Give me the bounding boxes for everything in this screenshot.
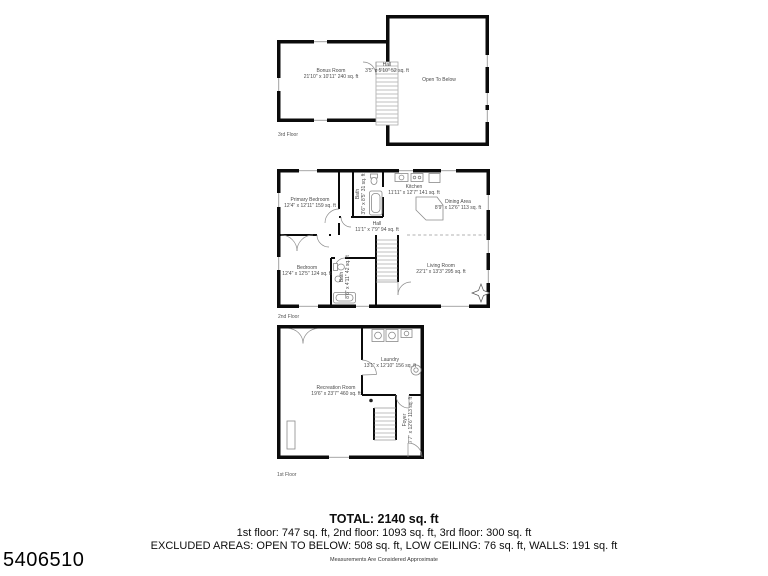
floor-plan-2nd: Primary Bedroom 12'4" x 12'11" 159 sq. f…	[277, 169, 490, 325]
floor-2-walls-drawing	[277, 169, 490, 325]
room-label-open-to-below: Open To Below	[422, 77, 456, 83]
floor-tag-2nd: 2nd Floor	[278, 314, 299, 320]
listing-id: 5406510	[3, 549, 84, 572]
room-label-bath-upper: Bath 3'6" x 8'5" 31 sq. ft	[355, 173, 368, 214]
room-label-primary-bedroom: Primary Bedroom 12'4" x 12'11" 159 sq. f…	[284, 197, 336, 210]
room-label-kitchen: Kitchen 11'11" x 12'7" 141 sq. ft	[388, 184, 439, 197]
room-label-hall-2nd: Hall 11'1" x 7'9" 94 sq. ft	[355, 221, 398, 234]
room-label-bedroom: Bedroom 12'4" x 12'5" 124 sq. ft	[282, 265, 331, 278]
floor-areas-text: 1st floor: 747 sq. ft, 2nd floor: 1093 s…	[0, 527, 768, 539]
disclaimer-text: Measurements Are Considered Approximate	[0, 557, 768, 563]
floor-plan-3rd: Bonus Room 21'10" x 10'11" 240 sq. ft Ha…	[277, 12, 490, 152]
room-label-hall-3rd: Hall 3'5" x 5'10" 52 sq. ft	[365, 62, 409, 75]
room-label-bath-lower: Bath 8'6" x 4'11" 42 sq. ft	[339, 255, 352, 298]
window-icon	[329, 456, 349, 460]
support-post-icon	[369, 399, 373, 403]
total-area-text: TOTAL: 2140 sq. ft	[0, 512, 768, 526]
room-label-laundry: Laundry 13'1" x 12'10" 156 sq. ft	[364, 357, 416, 370]
room-label-foyer: Foyer 7'7" x 12'6" 113 sq. ft	[402, 397, 415, 443]
floor-3-walls-drawing	[277, 12, 490, 152]
floor-2-outline	[279, 171, 489, 307]
room-label-dining-area: Dining Area 8'9" x 12'6" 113 sq. ft	[435, 199, 481, 212]
shelf-icon	[287, 421, 295, 449]
floor-plan-1st: Recreation Room 19'6" x 23'7" 460 sq. ft…	[277, 325, 425, 481]
floor-tag-3rd: 3rd Floor	[278, 132, 298, 138]
floor-tag-1st: 1st Floor	[277, 472, 296, 478]
room-label-bonus-room: Bonus Room 21'10" x 10'11" 240 sq. ft	[304, 68, 359, 81]
room-label-recreation-room: Recreation Room 19'6" x 23'7" 460 sq. ft	[311, 385, 360, 398]
room-label-living-room: Living Room 22'1" x 13'3" 295 sq. ft	[416, 263, 465, 276]
excluded-areas-text: EXCLUDED AREAS: OPEN TO BELOW: 508 sq. f…	[0, 540, 768, 552]
bonus-room-outline	[279, 42, 388, 121]
